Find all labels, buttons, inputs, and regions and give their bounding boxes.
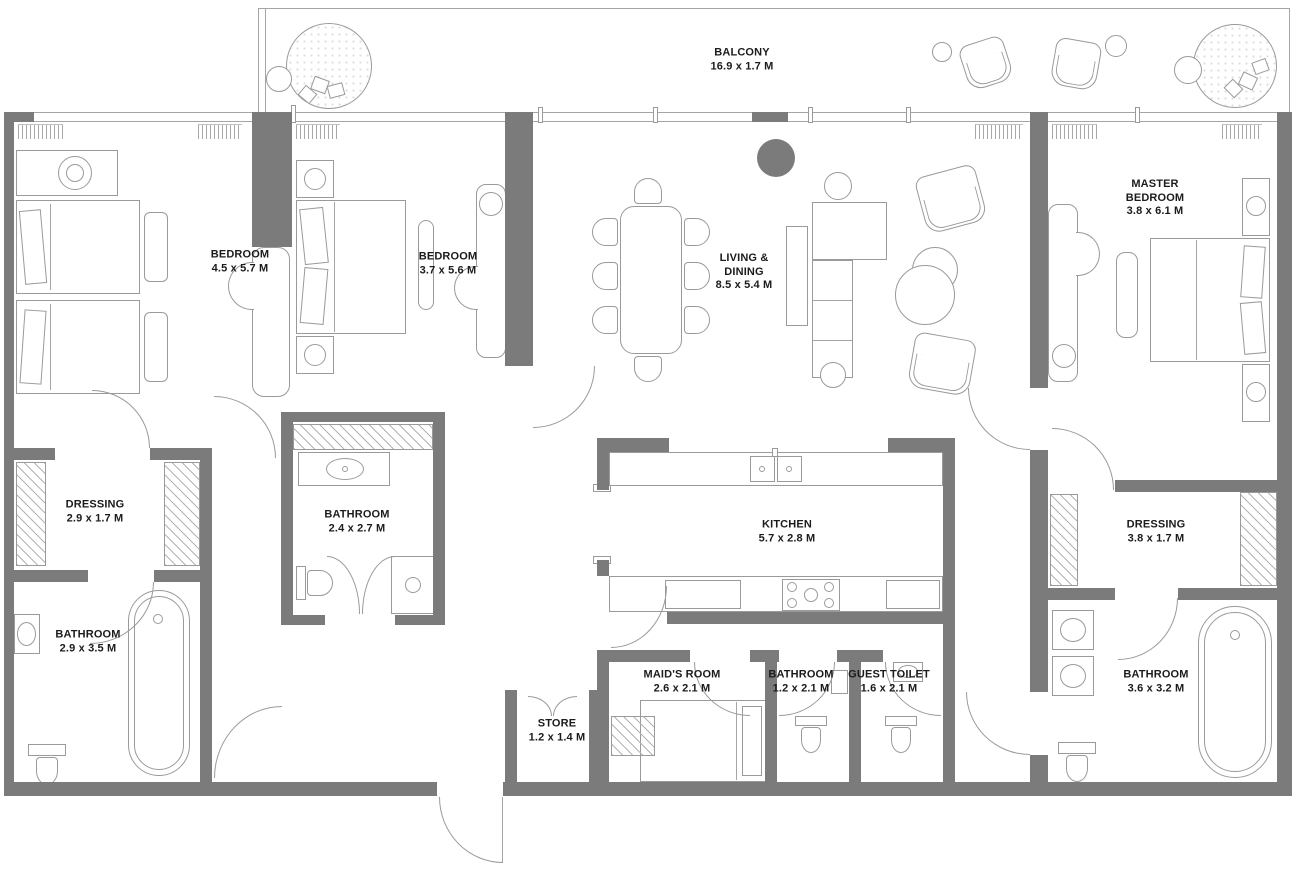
blanket-line (334, 202, 335, 332)
room-dims: 4.5 x 5.7 M (211, 262, 270, 276)
wall (597, 650, 609, 690)
side-table (1105, 35, 1127, 57)
room-dims: 1.2 x 1.4 M (529, 731, 586, 745)
door-arc-bedroom-2 (533, 366, 595, 428)
kitchen-counter (609, 452, 943, 486)
wall (281, 412, 445, 422)
wall (1030, 755, 1048, 782)
room-label-bathroom-2: BATHROOM 2.9 x 3.5 M (55, 629, 120, 656)
tub-drain (1230, 630, 1240, 640)
shower-drain (405, 577, 421, 593)
closet (1050, 494, 1078, 586)
door-arc-bathroom-1-left (327, 556, 360, 614)
wall (4, 112, 34, 122)
room-name: BEDROOM (419, 251, 478, 265)
pillow (300, 267, 329, 325)
pillow (1240, 245, 1266, 298)
wall (1048, 588, 1115, 600)
dining-table (620, 206, 682, 354)
bench (1116, 252, 1138, 338)
pillow (742, 706, 762, 776)
room-name: DRESSING (66, 499, 125, 513)
wall (200, 448, 212, 782)
room-name: GUEST TOILET (839, 669, 939, 683)
closet (16, 462, 46, 566)
kitchen-cabinet (886, 580, 940, 609)
mullion-tick (1135, 107, 1140, 123)
chair-seat (923, 186, 984, 231)
lamp (479, 192, 503, 216)
door-arc-entrance (439, 797, 503, 863)
wall (609, 650, 690, 662)
room-dims: 2.4 x 2.7 M (324, 522, 389, 536)
wall (1178, 588, 1277, 600)
toilet-tank (885, 716, 917, 726)
wall (505, 690, 517, 796)
room-name: BATHROOM (1123, 669, 1188, 683)
burner (787, 582, 797, 592)
wall (505, 112, 533, 366)
door-arc-bedroom-1 (214, 396, 276, 458)
burner (804, 588, 818, 602)
room-name: KITCHEN (759, 519, 816, 533)
room-label-master-bedroom: MASTER BEDROOM 3.8 x 6.1 M (1119, 178, 1191, 219)
nightstand (144, 212, 168, 282)
wall (943, 438, 955, 782)
mullion-tick (653, 107, 658, 123)
window-hatch (198, 124, 242, 139)
door-arc-bathroom-4 (1118, 598, 1178, 660)
dining-chair (592, 218, 618, 246)
chair-half (1076, 232, 1100, 276)
door-arc-service-passage (611, 586, 667, 648)
side-table (824, 172, 852, 200)
toilet-bowl (801, 727, 821, 753)
room-label-bathroom-1: BATHROOM 2.4 x 2.7 M (324, 509, 389, 536)
wall (154, 570, 212, 582)
room-dims: 2.6 x 2.1 M (627, 682, 737, 696)
door-arc-store-left (528, 696, 552, 716)
wall (150, 448, 212, 460)
room-dims: 1.2 x 2.1 M (768, 682, 833, 696)
wall (597, 560, 609, 576)
balcony-outline (265, 8, 266, 113)
sink-drain (786, 466, 792, 472)
console-table (786, 226, 808, 326)
side-table (266, 66, 292, 92)
toilet-tank (296, 566, 306, 600)
balcony-outline (258, 8, 1290, 9)
dining-chair (684, 262, 710, 290)
toilet-bowl (36, 757, 58, 785)
room-name: MASTER BEDROOM (1119, 178, 1191, 205)
blanket-line (1196, 240, 1197, 360)
room-label-kitchen: KITCHEN 5.7 x 2.8 M (759, 519, 816, 546)
mullion-tick (538, 107, 543, 123)
room-label-maids-room: MAID'S ROOM 2.6 x 2.1 M (627, 669, 737, 696)
chair-seat (1054, 55, 1096, 88)
door-arc-corridor (214, 706, 282, 778)
door-arc-bathroom-1-right (362, 556, 395, 614)
window-hatch (1052, 124, 1097, 139)
room-name: BEDROOM (211, 249, 270, 263)
toilet-tank (1058, 742, 1096, 754)
room-label-dressing-2: DRESSING 3.8 x 1.7 M (1127, 519, 1186, 546)
wall (1277, 112, 1292, 796)
room-dims: 2.9 x 3.5 M (55, 642, 120, 656)
room-label-bathroom-4: BATHROOM 3.6 x 3.2 M (1123, 669, 1188, 696)
room-dims: 8.5 x 5.4 M (709, 279, 779, 293)
armchair (914, 163, 989, 235)
burner (787, 598, 797, 608)
dining-chair (684, 306, 710, 334)
room-name: BALCONY (711, 47, 774, 61)
burner (824, 582, 834, 592)
balcony-chair (957, 34, 1015, 92)
wall (589, 690, 609, 796)
dining-chair (634, 178, 662, 204)
room-name: BATHROOM (768, 669, 833, 683)
window-hatch (975, 124, 1023, 139)
sofa (812, 260, 853, 378)
door-arc-dressing-2 (1052, 428, 1114, 490)
pouf (895, 265, 955, 325)
floor-plan: BALCONY 16.9 x 1.7 M BEDROOM 4.5 x 5.7 M… (0, 0, 1300, 870)
sofa-seat-line (813, 300, 852, 301)
room-dims: 3.7 x 5.6 M (419, 264, 478, 278)
wall (281, 412, 293, 625)
room-dims: 2.9 x 1.7 M (66, 512, 125, 526)
sink-basin (17, 622, 36, 646)
wall (1030, 112, 1048, 388)
wall (4, 448, 55, 460)
sink-drain (759, 466, 765, 472)
wall (1115, 480, 1277, 492)
wall (1030, 450, 1048, 692)
room-dims: 5.7 x 2.8 M (759, 532, 816, 546)
lamp (304, 168, 326, 190)
lamp (1246, 196, 1266, 216)
closet (611, 716, 655, 756)
room-label-balcony: BALCONY 16.9 x 1.7 M (711, 47, 774, 74)
balcony-chair (1049, 36, 1103, 91)
closet (1240, 492, 1277, 586)
wall (503, 782, 1277, 796)
room-dims: 3.6 x 3.2 M (1123, 682, 1188, 696)
sink-basin (1060, 618, 1086, 642)
room-label-bedroom-1: BEDROOM 4.5 x 5.7 M (211, 249, 270, 276)
room-label-bathroom-3: BATHROOM 1.2 x 2.1 M (768, 669, 833, 696)
sink-drain (342, 466, 348, 472)
dining-chair (634, 356, 662, 382)
door-arc-dressing-1 (92, 390, 150, 448)
tub-drain (153, 614, 163, 624)
wall (4, 570, 88, 582)
balcony-outline (258, 8, 259, 113)
room-name: BATHROOM (55, 629, 120, 643)
balcony-outline (1289, 8, 1290, 113)
dining-chair (592, 306, 618, 334)
room-label-store: STORE 1.2 x 1.4 M (529, 718, 586, 745)
room-dims: 3.8 x 1.7 M (1127, 532, 1186, 546)
nightstand (144, 312, 168, 382)
toilet-tank (28, 744, 66, 756)
room-name: STORE (529, 718, 586, 732)
lamp (304, 344, 326, 366)
toilet-bowl (891, 727, 911, 753)
room-name: LIVING & DINING (709, 252, 779, 279)
room-name: BATHROOM (324, 509, 389, 523)
door-arc-store-right (553, 696, 577, 716)
window-hatch (296, 124, 340, 139)
room-dims: 16.9 x 1.7 M (711, 60, 774, 74)
room-dims: 3.8 x 6.1 M (1119, 205, 1191, 219)
wall (597, 438, 609, 490)
mullion-tick (906, 107, 911, 123)
room-name: MAID'S ROOM (627, 669, 737, 683)
burner (824, 598, 834, 608)
sink-basin (1060, 664, 1086, 688)
faucet (772, 448, 778, 457)
room-name: DRESSING (1127, 519, 1186, 533)
window-line (4, 121, 1292, 122)
toilet-tank (795, 716, 827, 726)
wall (281, 615, 325, 625)
toilet-bowl (1066, 755, 1088, 782)
window-hatch (1222, 124, 1262, 139)
side-table (1174, 56, 1202, 84)
blanket-line (50, 304, 51, 390)
side-table (932, 42, 952, 62)
side-table (820, 362, 846, 388)
room-label-living-dining: LIVING & DINING 8.5 x 5.4 M (709, 252, 779, 293)
blanket-line (50, 204, 51, 290)
closet (293, 424, 433, 450)
room-label-guest-toilet: GUEST TOILET 1.6 x 2.1 M (839, 669, 939, 696)
room-dims: 1.6 x 2.1 M (839, 682, 939, 696)
chair-seat (911, 353, 970, 393)
armchair (907, 331, 978, 397)
chair-seat (966, 52, 1010, 88)
wall (4, 782, 437, 796)
wall (433, 412, 445, 625)
kitchen-cabinet (665, 580, 741, 609)
sofa-seat-line (813, 340, 852, 341)
closet (164, 462, 200, 566)
door-arc-master-hall (966, 692, 1030, 755)
stool (66, 164, 84, 182)
dining-chair (592, 262, 618, 290)
mullion-tick (808, 107, 813, 123)
room-label-dressing-1: DRESSING 2.9 x 1.7 M (66, 499, 125, 526)
wall (252, 112, 292, 247)
window-line (4, 112, 1292, 113)
window-hatch (18, 124, 63, 139)
dining-chair (684, 218, 710, 246)
room-label-bedroom-2: BEDROOM 3.7 x 5.6 M (419, 251, 478, 278)
lamp (1246, 382, 1266, 402)
wall (395, 615, 445, 625)
lamp (1052, 344, 1076, 368)
wall (667, 612, 943, 624)
wall (752, 112, 788, 122)
door-arc-master-bedroom (968, 388, 1030, 450)
pillow (1240, 301, 1266, 355)
column (757, 139, 795, 177)
sofa (812, 202, 887, 260)
